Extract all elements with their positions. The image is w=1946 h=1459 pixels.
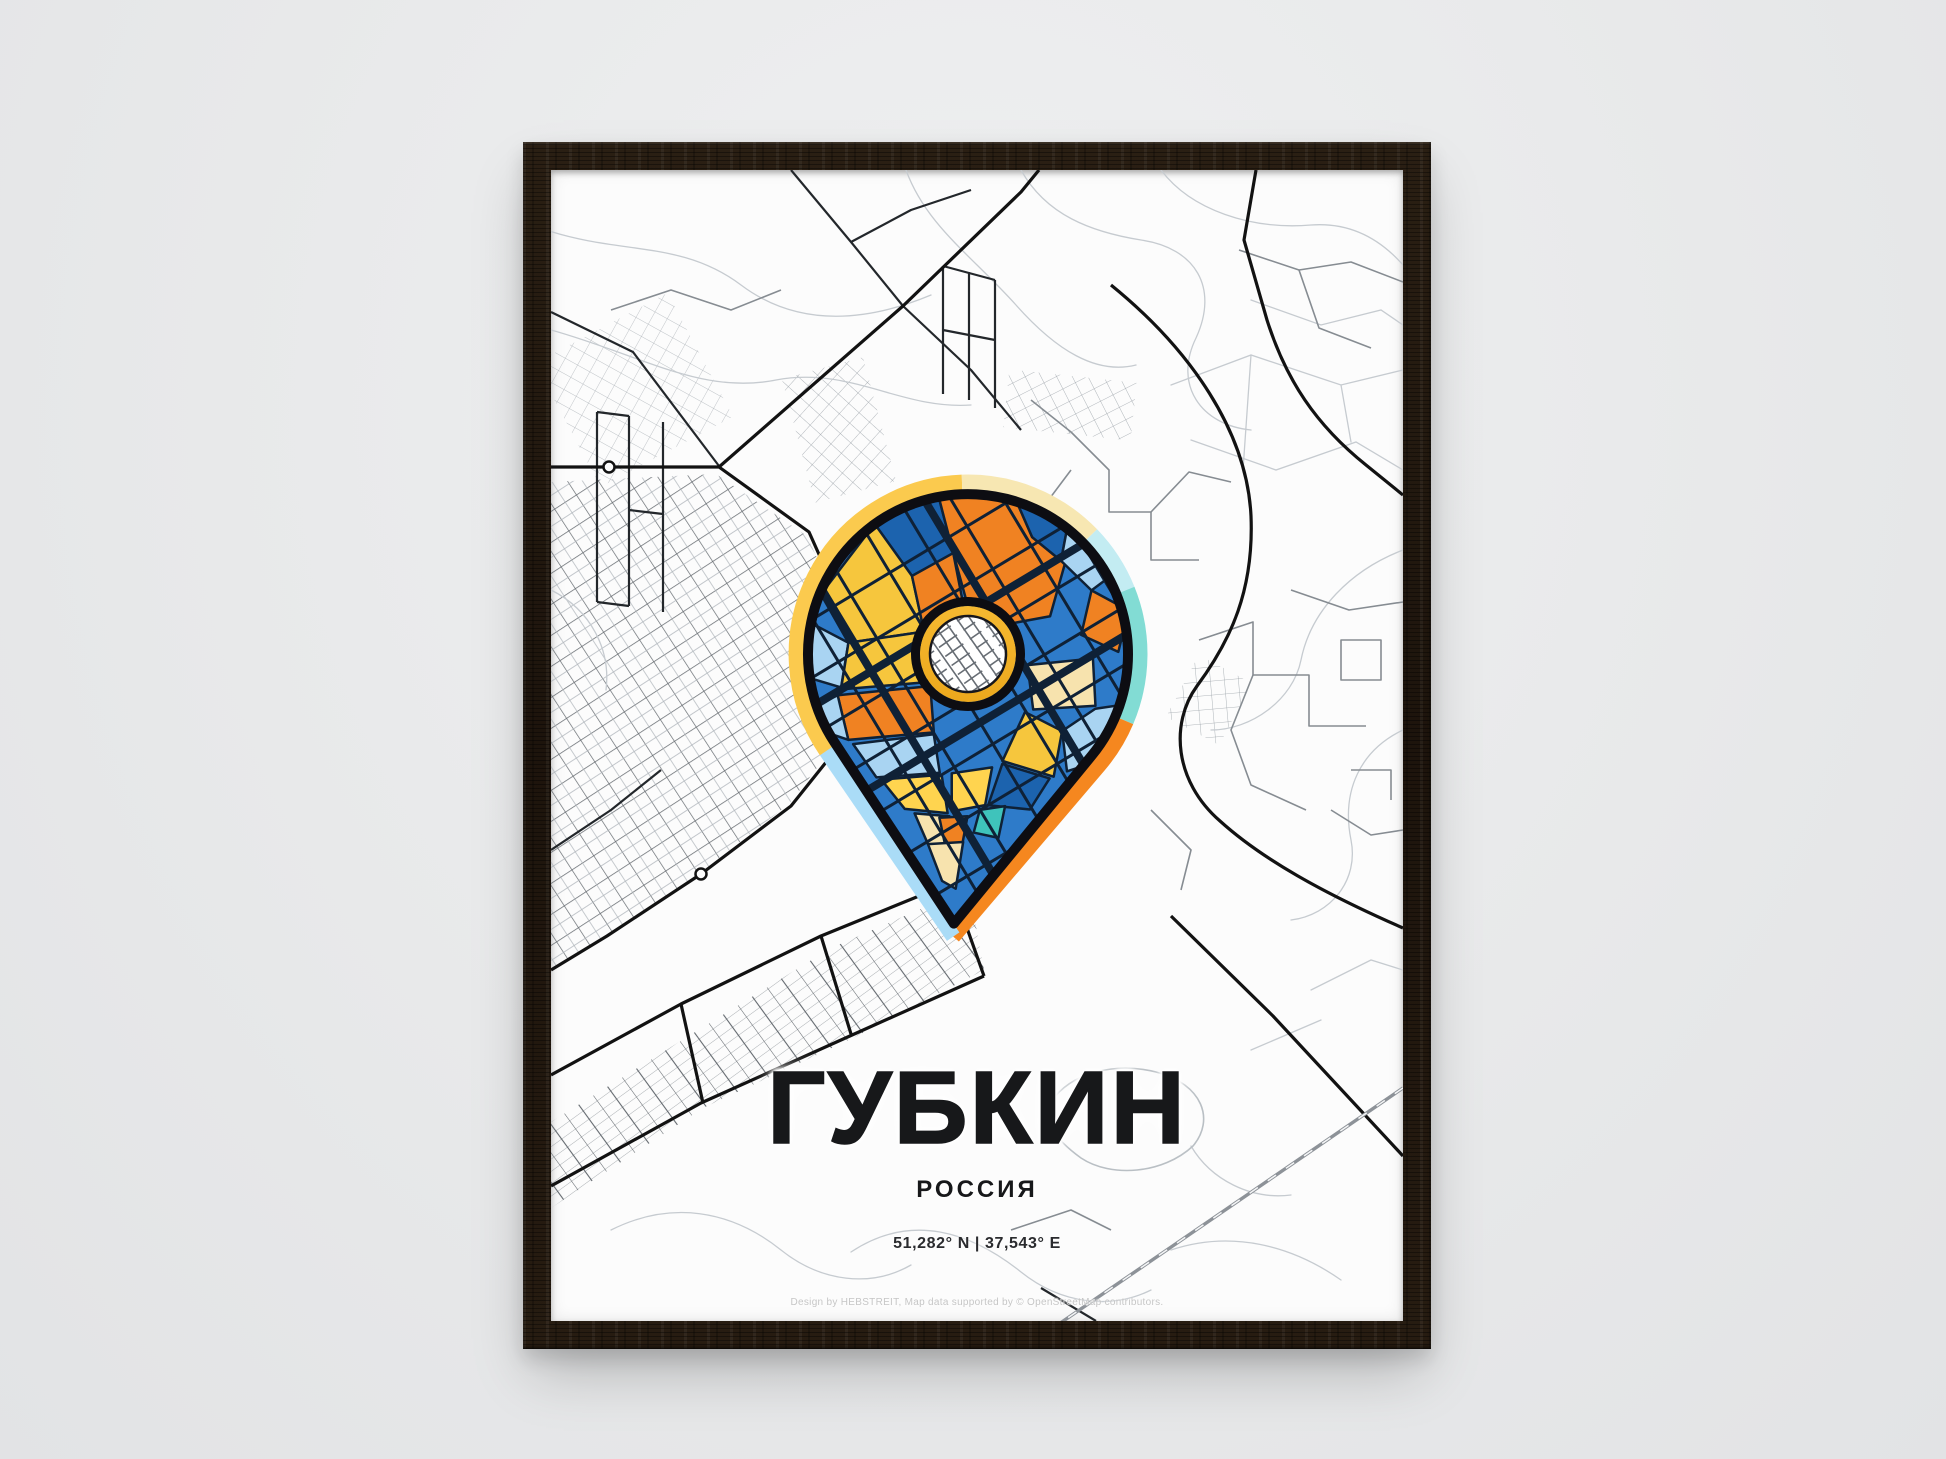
map-poster: ГУБКИН РОССИЯ 51,282° N | 37,543° E Desi… [551,170,1403,1321]
picture-frame: ГУБКИН РОССИЯ 51,282° N | 37,543° E Desi… [523,142,1431,1349]
wall: ГУБКИН РОССИЯ 51,282° N | 37,543° E Desi… [0,0,1946,1459]
dense-blocks-north [782,357,896,502]
poster-title: ГУБКИН [551,1056,1403,1159]
roundabout [696,869,707,880]
poster-coordinates: 51,282° N | 37,543° E [551,1236,1403,1252]
poster-subtitle: РОССИЯ [551,1178,1403,1202]
dense-blocks-northeast [1003,369,1136,440]
poster-attribution: Design by HEBSTREIT, Map data supported … [551,1298,1403,1308]
dense-blocks-northwest [551,293,733,487]
roundabout [604,462,615,473]
